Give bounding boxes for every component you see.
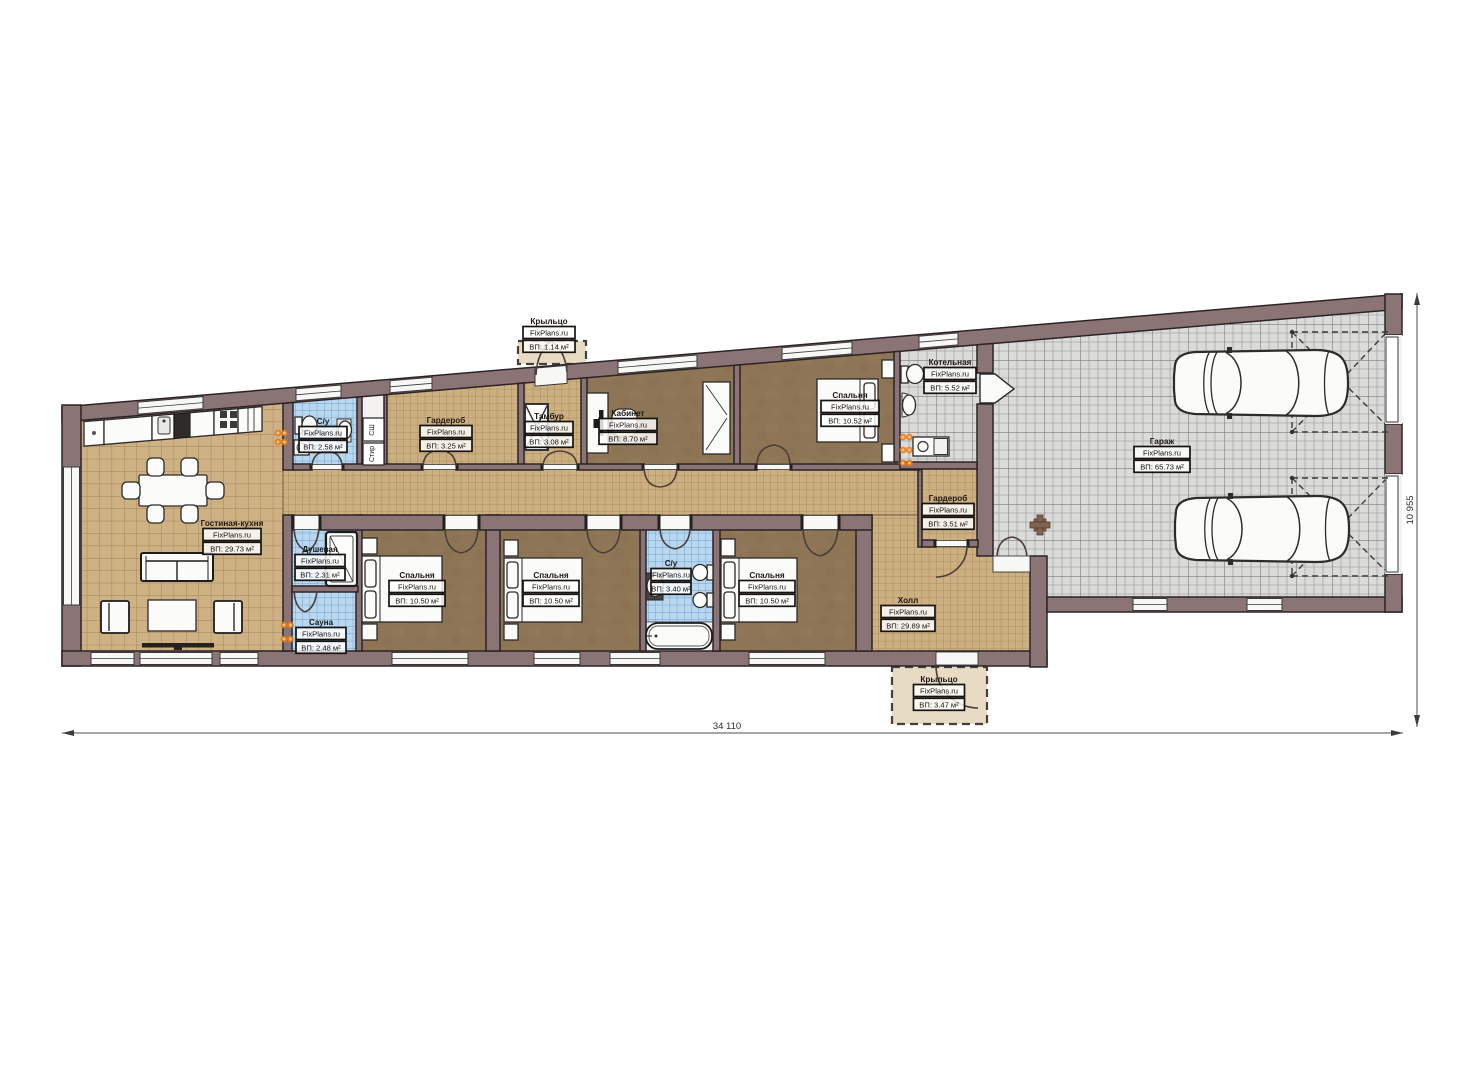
svg-text:FixPlans.ru: FixPlans.ru <box>920 687 958 696</box>
svg-text:Холл: Холл <box>898 596 919 605</box>
svg-text:Крыльцо: Крыльцо <box>530 317 567 326</box>
svg-text:ВП: 3.51 м²: ВП: 3.51 м² <box>928 519 968 528</box>
svg-text:Гардероб: Гардероб <box>427 415 466 425</box>
svg-text:Гараж: Гараж <box>1150 437 1175 446</box>
svg-text:ВП: 10.50 м²: ВП: 10.50 м² <box>529 596 573 605</box>
svg-text:С/у: С/у <box>665 559 678 568</box>
svg-text:FixPlans.ru: FixPlans.ru <box>304 429 342 438</box>
svg-text:FixPlans.ru: FixPlans.ru <box>398 583 436 592</box>
svg-text:Кабинет: Кабинет <box>611 408 644 418</box>
svg-text:FixPlans.ru: FixPlans.ru <box>213 531 251 540</box>
svg-text:FixPlans.ru: FixPlans.ru <box>748 583 786 592</box>
svg-text:ВП: 10.52 м²: ВП: 10.52 м² <box>828 416 872 425</box>
svg-text:Гостиная-кухня: Гостиная-кухня <box>201 519 264 528</box>
svg-text:ВП: 5.52 м²: ВП: 5.52 м² <box>930 383 970 392</box>
svg-text:FixPlans.ru: FixPlans.ru <box>1143 449 1181 458</box>
svg-text:Спальня: Спальня <box>533 571 569 580</box>
svg-text:Котельная: Котельная <box>929 358 972 367</box>
svg-text:ВП: 2.58 м²: ВП: 2.58 м² <box>303 442 343 451</box>
svg-text:FixPlans.ru: FixPlans.ru <box>301 557 339 566</box>
svg-text:ВП: 10.50 м²: ВП: 10.50 м² <box>745 596 789 605</box>
svg-text:Тамбур: Тамбур <box>534 411 564 421</box>
svg-text:ВП: 2.31 м²: ВП: 2.31 м² <box>300 570 340 579</box>
svg-text:FixPlans.ru: FixPlans.ru <box>302 630 340 639</box>
svg-text:Сауна: Сауна <box>309 618 334 627</box>
svg-text:ВП: 29.89 м²: ВП: 29.89 м² <box>886 621 930 630</box>
svg-text:FixPlans.ru: FixPlans.ru <box>609 421 647 430</box>
svg-text:Стир: Стир <box>369 446 376 462</box>
svg-text:ВП: 29.73 м²: ВП: 29.73 м² <box>210 544 254 553</box>
svg-text:ВП: 2.48 м²: ВП: 2.48 м² <box>301 643 341 652</box>
svg-text:FixPlans.ru: FixPlans.ru <box>889 608 927 617</box>
svg-text:ВП: 3.47 м²: ВП: 3.47 м² <box>919 700 959 709</box>
svg-text:Крыльцо: Крыльцо <box>920 675 957 684</box>
svg-text:FixPlans.ru: FixPlans.ru <box>652 571 690 580</box>
svg-text:34 110: 34 110 <box>713 721 741 732</box>
svg-text:FixPlans.ru: FixPlans.ru <box>931 370 969 379</box>
svg-text:ВП: 1.14 м²: ВП: 1.14 м² <box>529 342 569 351</box>
svg-text:FixPlans.ru: FixPlans.ru <box>532 583 570 592</box>
svg-text:Спальня: Спальня <box>749 571 785 580</box>
svg-text:СШ: СШ <box>369 424 376 435</box>
svg-text:ВП: 8.70 м²: ВП: 8.70 м² <box>608 434 648 443</box>
svg-text:ВП: 3.08 м²: ВП: 3.08 м² <box>529 437 569 446</box>
svg-text:ВП: 10.50 м²: ВП: 10.50 м² <box>395 596 439 605</box>
svg-text:Спальня: Спальня <box>399 571 435 580</box>
svg-text:ВП: 3.25 м²: ВП: 3.25 м² <box>426 441 466 450</box>
svg-text:Гардероб: Гардероб <box>929 493 968 503</box>
svg-text:FixPlans.ru: FixPlans.ru <box>530 329 568 338</box>
svg-text:FixPlans.ru: FixPlans.ru <box>530 424 568 433</box>
svg-text:FixPlans.ru: FixPlans.ru <box>831 403 869 412</box>
svg-text:Спальня: Спальня <box>832 391 868 400</box>
svg-text:FixPlans.ru: FixPlans.ru <box>427 428 465 437</box>
svg-text:Душевая: Душевая <box>302 545 338 554</box>
svg-text:FixPlans.ru: FixPlans.ru <box>929 506 967 515</box>
svg-text:ВП: 65.73 м²: ВП: 65.73 м² <box>1140 462 1184 471</box>
svg-text:10 955: 10 955 <box>1405 495 1416 524</box>
svg-text:С/у: С/у <box>317 417 330 426</box>
svg-text:ВП: 3.40 м²: ВП: 3.40 м² <box>651 584 691 593</box>
